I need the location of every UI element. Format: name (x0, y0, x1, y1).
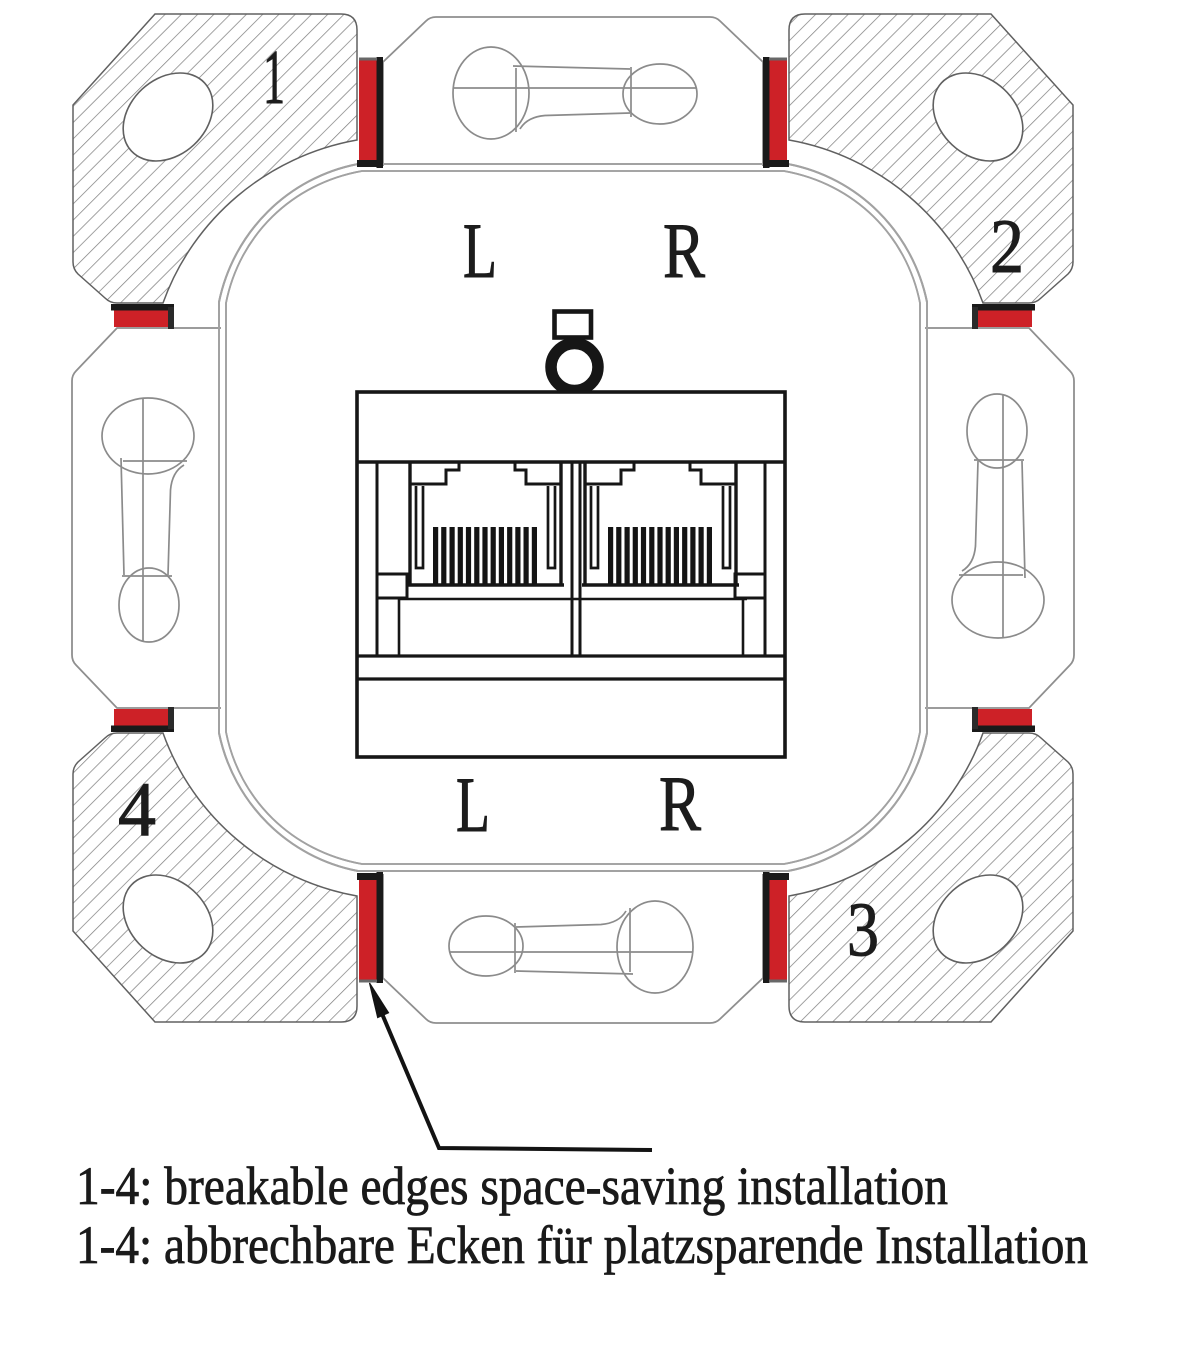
svg-text:1-4: breakable edges space-sav: 1-4: breakable edges space-saving instal… (76, 1156, 948, 1216)
svg-text:L: L (463, 207, 497, 294)
svg-text:4: 4 (118, 766, 156, 852)
svg-text:2: 2 (990, 203, 1024, 289)
svg-text:3: 3 (847, 886, 879, 972)
svg-text:L: L (456, 761, 490, 848)
svg-text:1: 1 (263, 34, 285, 120)
svg-text:R: R (663, 207, 705, 294)
svg-text:1-4: abbrechbare Ecken für pla: 1-4: abbrechbare Ecken für platzsparende… (76, 1215, 1088, 1275)
svg-text:R: R (659, 760, 701, 847)
